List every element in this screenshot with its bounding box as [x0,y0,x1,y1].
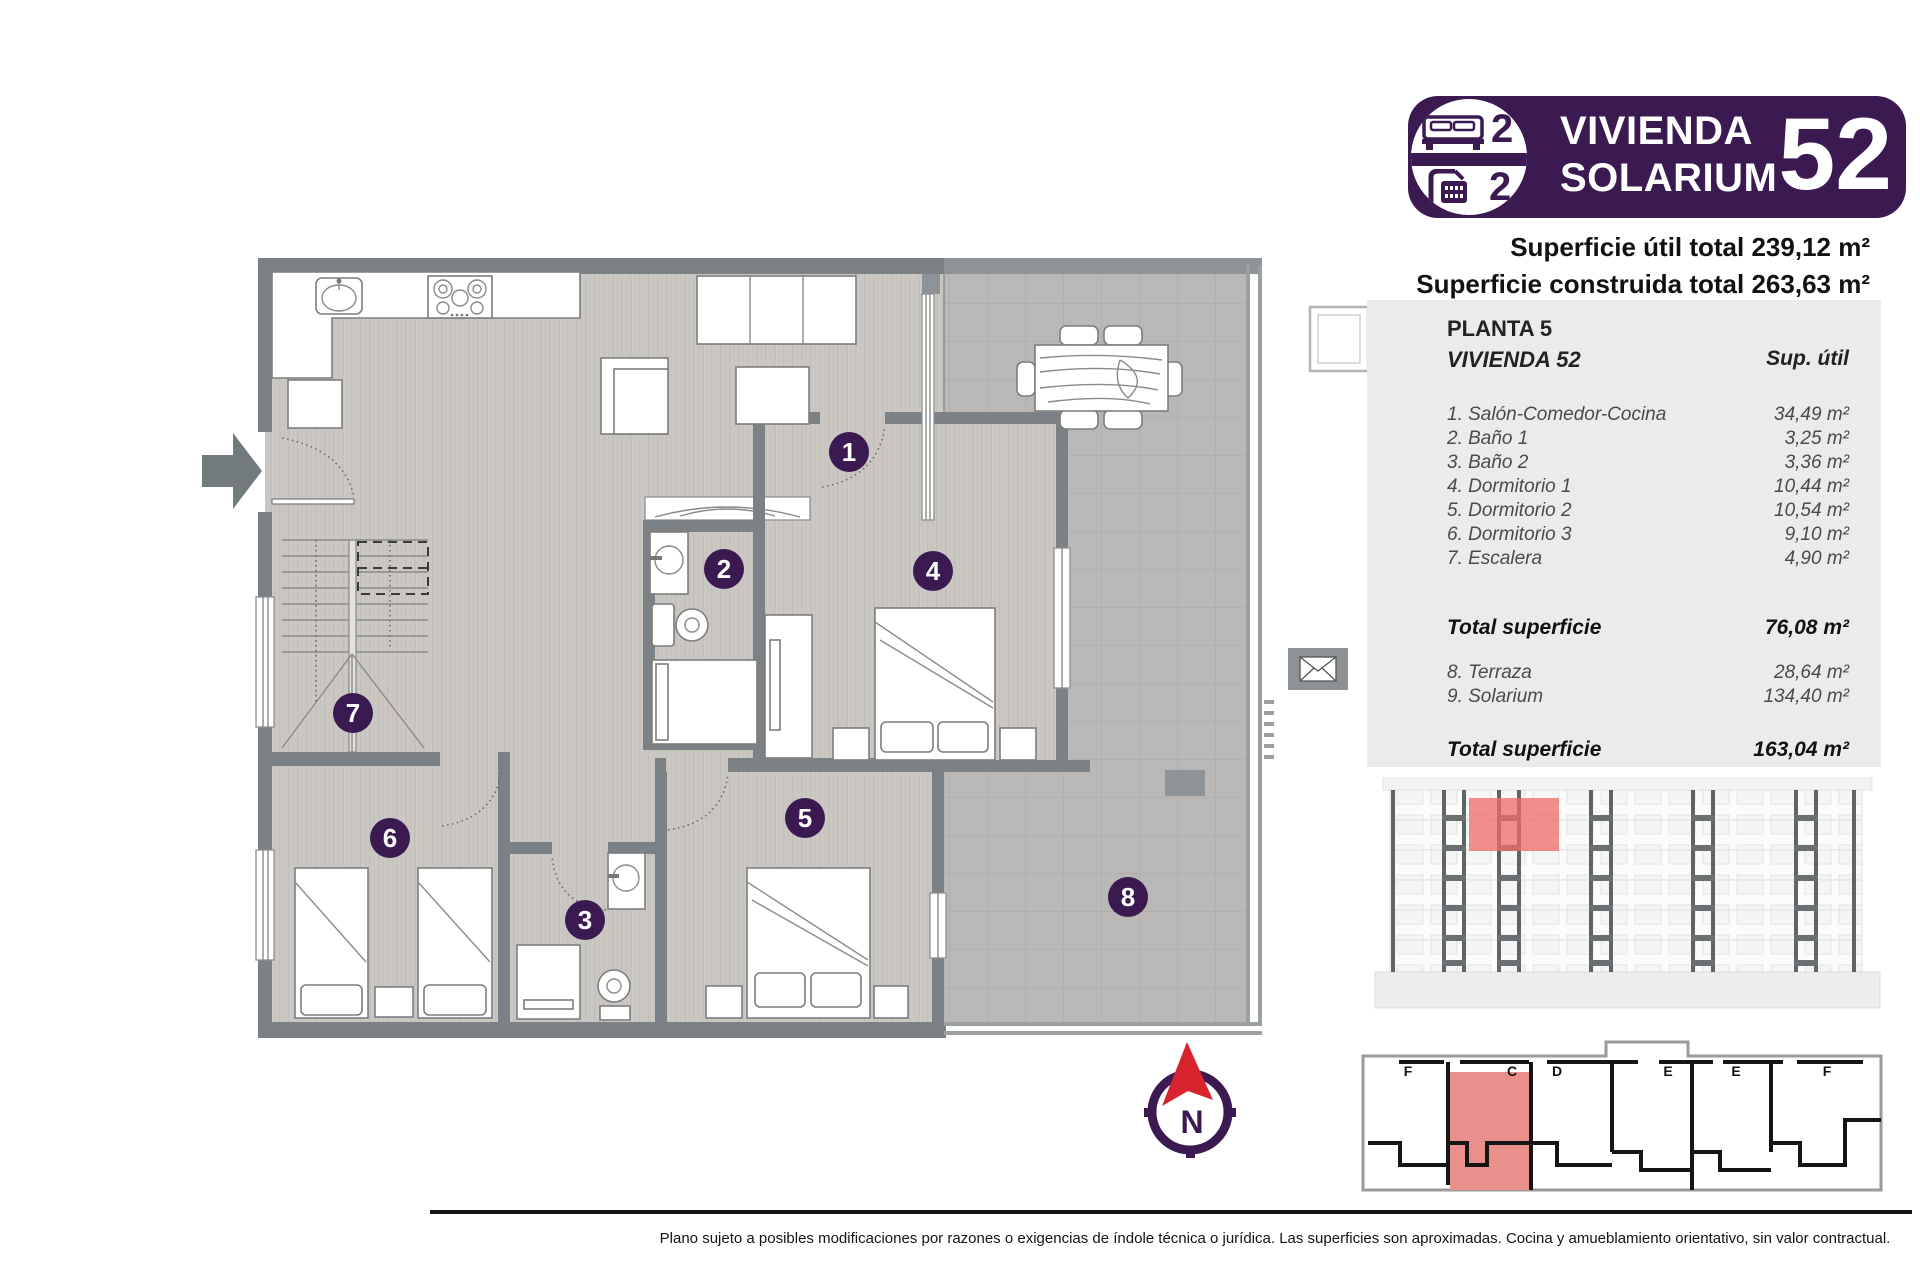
unit-title: VIVIENDA SOLARIUM [1560,108,1777,202]
svg-text:E: E [1663,1063,1672,1079]
svg-text:3: 3 [578,905,592,935]
svg-text:1: 1 [842,437,856,467]
keyplan-unit-highlight [1450,1072,1532,1190]
panel-column-header: Sup. útil [1766,347,1849,373]
nightstand [874,986,908,1018]
bedrooms-count: 2 [1491,109,1513,149]
sofa [697,276,856,344]
window-living-terrace [922,294,934,520]
svg-text:F: F [1404,1063,1413,1079]
svg-text:F: F [1823,1063,1832,1079]
surface-built-total: Superficie construida total 263,63 m² [1416,266,1870,303]
fridge-icon [288,380,342,428]
north-compass-icon: N [1144,1042,1236,1158]
bed-icon [1421,111,1487,151]
washbasin-icon [650,532,688,594]
badge-living: 1 [829,432,869,472]
bathrooms-count: 2 [1489,167,1511,207]
surface-summary: Superficie útil total 239,12 m² Superfic… [1416,229,1870,303]
common-area-shaft [1310,307,1368,371]
key-plan: F C D E E F [1363,1042,1881,1190]
total-interior-row: Total superficie76,08 m² [1447,616,1849,640]
surface-row: 4. Dormitorio 110,44 m² [1447,476,1849,498]
svg-text:7: 7 [346,698,360,728]
badge-stairs: 7 [333,693,373,733]
sink-icon [316,278,362,314]
badge-bath1: 2 [704,549,744,589]
nightstand [375,987,413,1017]
window-bedroom1 [1054,548,1070,688]
surface-row: 1. Salón-Comedor-Cocina34,49 m² [1447,404,1849,426]
footer-disclaimer: Plano sujeto a posibles modificaciones p… [640,1230,1910,1247]
footer-divider [430,1210,1912,1214]
shower-tray [517,945,580,1019]
svg-text:D: D [1552,1063,1562,1079]
svg-text:4: 4 [926,556,941,586]
surface-row: 6. Dormitorio 39,10 m² [1447,524,1849,546]
double-bed [747,868,870,1018]
panel-floor-label: PLANTA 5 [1447,316,1552,342]
badge-bedroom2: 5 [785,798,825,838]
svg-text:5: 5 [798,803,812,833]
svg-text:E: E [1731,1063,1740,1079]
surfaces-panel: PLANTA 5 VIVIENDA 52 Sup. útil 1. Salón-… [1367,300,1881,767]
svg-text:6: 6 [383,823,397,853]
armchair [601,358,668,434]
panel-unit-label: VIVIENDA 52 [1447,347,1581,373]
surface-util-total: Superficie útil total 239,12 m² [1416,229,1870,266]
unit-number: 52 [1779,100,1892,208]
window-stairs [256,597,274,727]
surface-row: 2. Baño 13,25 m² [1447,428,1849,450]
surface-row: 8. Terraza28,64 m² [1447,662,1849,684]
nightstand [1000,728,1036,760]
washbasin-icon [608,853,645,909]
coffee-table [736,367,809,424]
shower-tray [652,660,757,744]
rooms-count-circle: 2 2 [1411,99,1527,215]
entry-arrow-icon [202,433,262,509]
building-elevation [1375,778,1880,1008]
single-bed [295,868,368,1018]
entry-door-leaf [272,499,354,504]
vent-grille [1264,700,1274,759]
mailbox-icon [1288,648,1348,690]
surface-row: 5. Dormitorio 210,54 m² [1447,500,1849,522]
svg-text:C: C [1507,1063,1517,1079]
shower-icon [1425,169,1481,213]
svg-text:N: N [1180,1104,1203,1140]
total-overall-row: Total superficie163,04 m² [1447,738,1849,762]
window-bedroom2 [930,893,946,958]
unit-header-badge: 2 2 VIVIENDA SOLARIUM 52 [1408,96,1906,218]
svg-text:2: 2 [717,554,731,584]
single-bed [418,868,492,1018]
elevation-unit-highlight [1469,798,1559,851]
double-bed [875,608,995,760]
badge-bedroom1: 4 [913,551,953,591]
surface-row: 3. Baño 23,36 m² [1447,452,1849,474]
badge-bedroom3: 6 [370,818,410,858]
nightstand [706,986,742,1018]
svg-text:8: 8 [1121,882,1135,912]
toilet-icon [598,970,630,1020]
bedroom1-furniture [765,608,1036,760]
floorplan-page: { "header": { "bedrooms_count": "2", "ba… [0,0,1920,1280]
badge-terrace: 8 [1108,877,1148,917]
nightstand [833,728,869,760]
badge-bath2: 3 [565,900,605,940]
window-bedroom3 [256,850,274,960]
surface-row: 9. Solarium134,40 m² [1447,686,1849,708]
surface-row: 7. Escalera4,90 m² [1447,548,1849,570]
stove-icon [428,276,492,318]
